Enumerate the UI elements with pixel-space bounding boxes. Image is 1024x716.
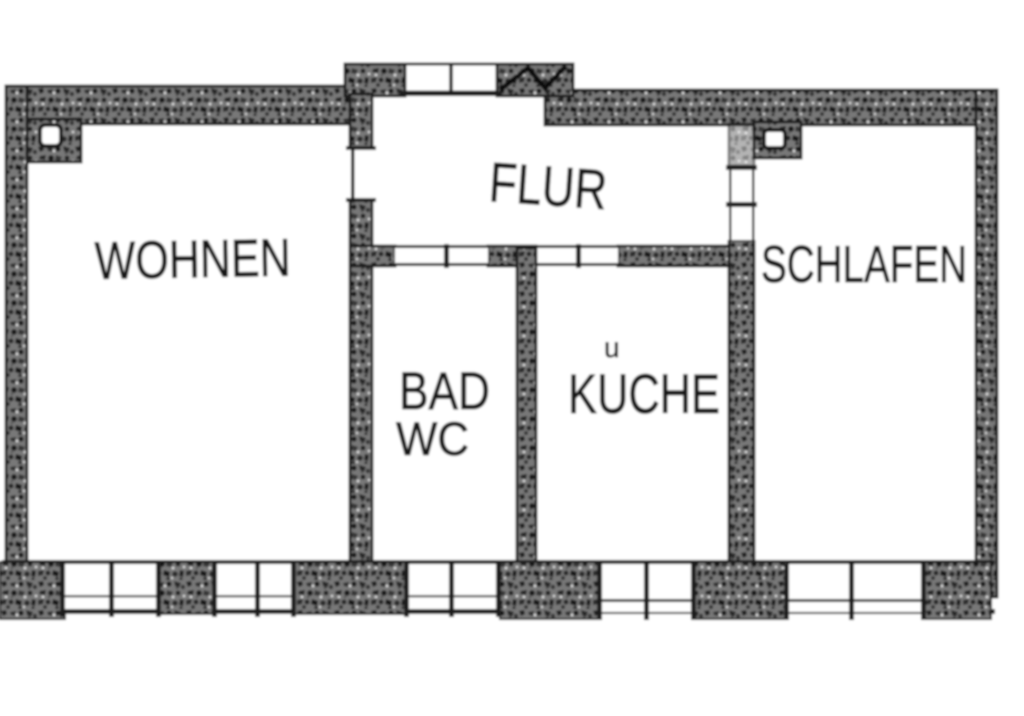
svg-text:WC: WC bbox=[396, 412, 469, 465]
svg-text:u: u bbox=[604, 332, 620, 363]
svg-text:KUCHE: KUCHE bbox=[568, 362, 720, 425]
svg-text:WOHNEN: WOHNEN bbox=[94, 229, 291, 291]
svg-text:SCHLAFEN: SCHLAFEN bbox=[761, 236, 967, 294]
svg-text:FLUR: FLUR bbox=[487, 150, 609, 221]
